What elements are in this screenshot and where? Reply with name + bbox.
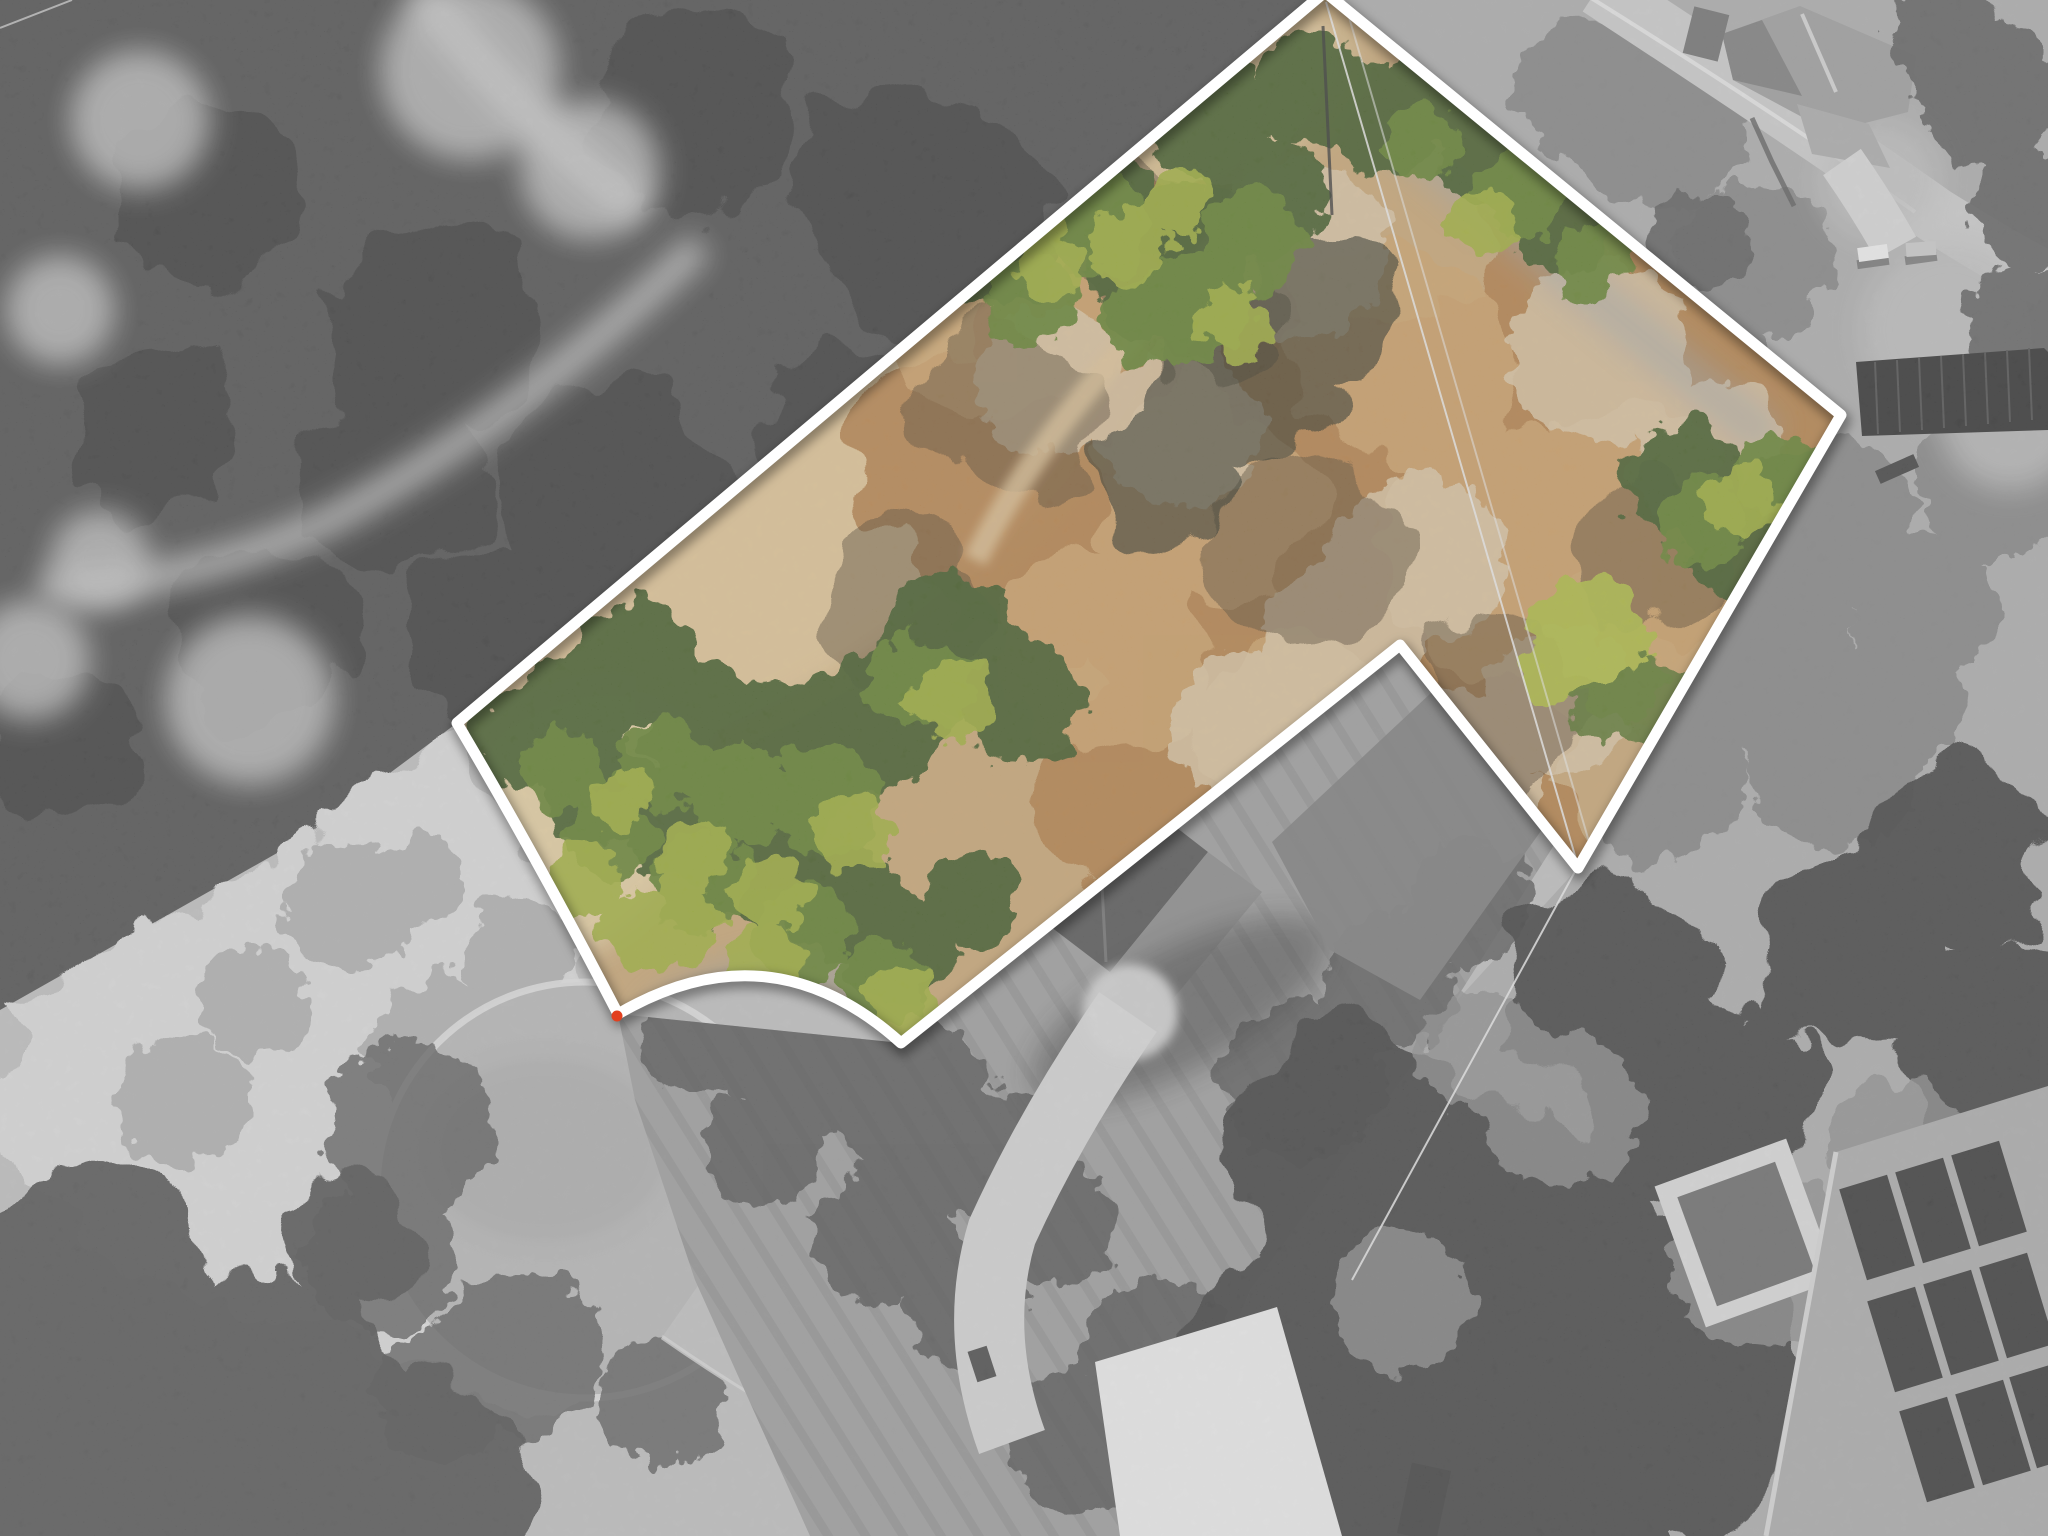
photo-grain-coarse — [0, 0, 2048, 1536]
photo-grain — [0, 0, 2048, 1536]
survey-marker-dot — [612, 1011, 623, 1022]
aerial-photo — [0, 0, 2048, 1536]
aerial-photo-canvas — [0, 0, 2048, 1536]
